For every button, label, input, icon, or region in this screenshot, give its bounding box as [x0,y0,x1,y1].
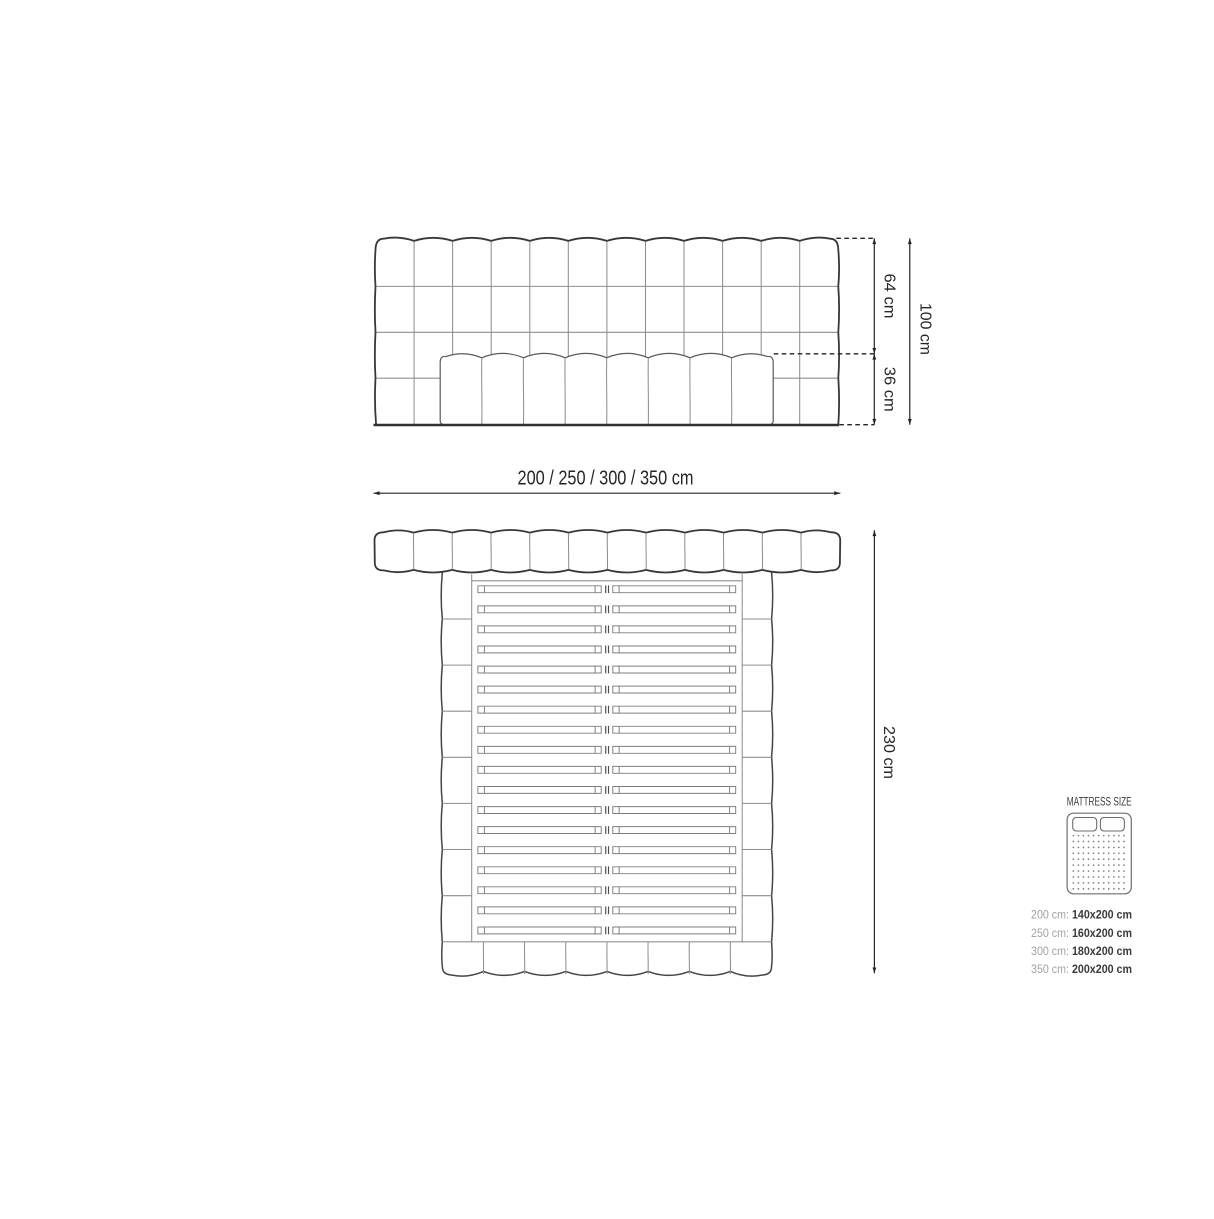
svg-text:36 cm: 36 cm [880,367,897,412]
svg-text:MATTRESS SIZE: MATTRESS SIZE [1067,797,1132,809]
svg-text:64 cm: 64 cm [880,274,897,319]
svg-text:250 cm: 160x200 cm: 250 cm: 160x200 cm [1031,926,1132,940]
svg-text:200 / 250 / 300 / 350 cm: 200 / 250 / 300 / 350 cm [518,468,694,490]
svg-text:200 cm: 140x200 cm: 200 cm: 140x200 cm [1031,908,1132,922]
svg-text:100 cm: 100 cm [916,303,933,355]
svg-text:350 cm: 200x200 cm: 350 cm: 200x200 cm [1031,962,1132,976]
svg-text:300 cm: 180x200 cm: 300 cm: 180x200 cm [1031,944,1132,958]
svg-text:230 cm: 230 cm [880,726,897,779]
